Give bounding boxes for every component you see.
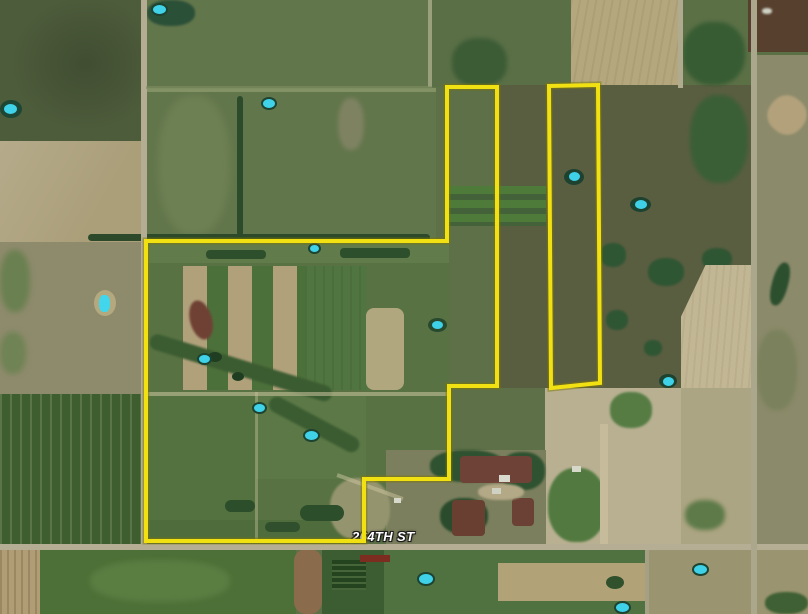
field-patch [548, 468, 606, 542]
farmstead [512, 498, 534, 526]
tree-line [644, 340, 662, 356]
satellite-map[interactable]: 264TH ST [0, 0, 808, 614]
tree-line [237, 96, 243, 236]
field-patch [610, 392, 652, 428]
road [0, 544, 808, 550]
road [141, 0, 147, 545]
tree-line [690, 95, 748, 183]
field-patch [366, 308, 404, 390]
field-patch [0, 0, 142, 141]
building [572, 466, 581, 472]
pond [99, 295, 110, 312]
field-patch [0, 549, 40, 614]
road [600, 424, 608, 544]
trail [146, 392, 449, 396]
field-patch [305, 266, 367, 390]
pond [616, 603, 629, 612]
pond [199, 355, 210, 363]
pond [569, 172, 580, 181]
tree-line [648, 258, 684, 286]
field-patch [90, 560, 230, 602]
road [428, 0, 432, 87]
tree-line [452, 38, 507, 87]
field-patch [685, 500, 725, 530]
tree-line [300, 505, 344, 521]
pond [4, 104, 17, 114]
pond [147, 0, 195, 26]
tree-line [208, 352, 222, 362]
field-patch [757, 330, 797, 410]
pond [254, 404, 265, 412]
farmstead [460, 456, 532, 483]
building [762, 8, 772, 14]
field-patch [571, 0, 679, 86]
tree-line [683, 22, 745, 85]
field-patch [765, 592, 808, 614]
road [645, 550, 649, 614]
building [394, 498, 401, 503]
tree-line [340, 248, 410, 258]
tree-line [748, 0, 808, 52]
tree-line [206, 250, 266, 259]
building [492, 488, 501, 494]
tree-line [606, 310, 628, 330]
pond [305, 431, 318, 440]
tree-line [88, 234, 430, 241]
building [360, 555, 390, 562]
tree-line [225, 500, 255, 512]
pond [432, 321, 443, 329]
field-patch [0, 394, 142, 544]
farmstead [478, 484, 524, 500]
tree-line [232, 372, 244, 381]
road [678, 0, 683, 88]
tree-line [265, 522, 300, 532]
tree-line [606, 576, 624, 589]
road [751, 0, 757, 614]
building [499, 475, 510, 482]
trail [255, 392, 258, 541]
pond [153, 5, 166, 14]
field-patch [0, 141, 142, 242]
pond [310, 245, 319, 252]
tree-line [332, 560, 366, 590]
farmstead [452, 500, 485, 536]
field-boundary [146, 86, 432, 89]
field-patch [448, 186, 546, 226]
field-patch [338, 98, 364, 150]
field-patch [158, 95, 230, 235]
pond [263, 99, 275, 108]
pond [663, 377, 674, 386]
field-patch [0, 250, 30, 312]
creek [294, 549, 322, 614]
pond [419, 574, 433, 584]
road-label: 264TH ST [352, 529, 414, 544]
pond [694, 565, 707, 574]
field-patch [0, 332, 26, 374]
pond [635, 200, 647, 209]
tree-line [600, 243, 626, 267]
